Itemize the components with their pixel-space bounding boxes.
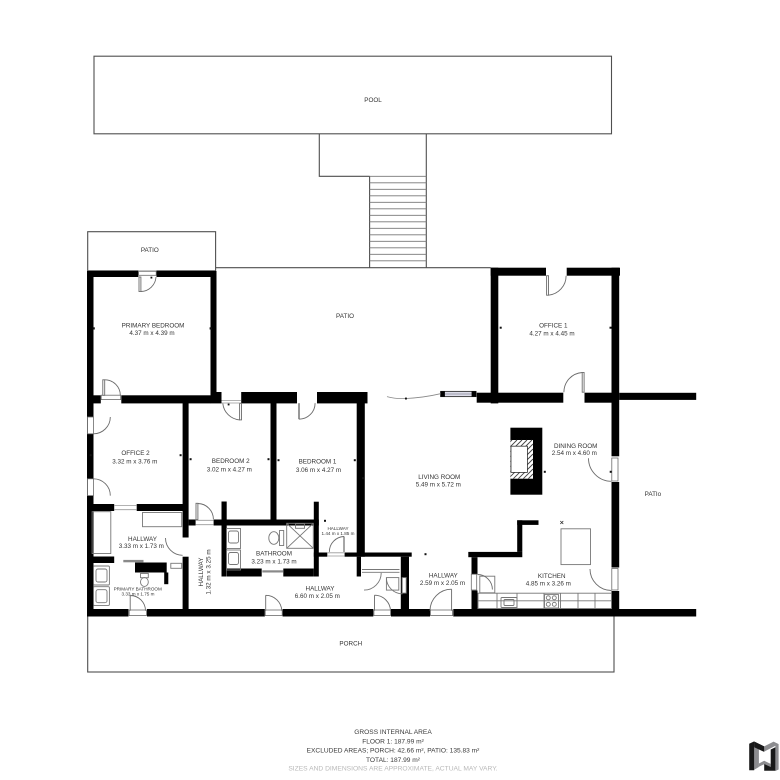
svg-text:OFFICE 1: OFFICE 1	[539, 323, 568, 330]
svg-text:3.33 m x 1.73 m: 3.33 m x 1.73 m	[119, 543, 164, 550]
svg-text:HALLWAY: HALLWAY	[198, 557, 205, 587]
svg-text:BEDROOM 2: BEDROOM 2	[212, 458, 250, 465]
svg-text:3.32 m x 3.76 m: 3.32 m x 3.76 m	[112, 459, 157, 466]
svg-text:2.54 m x 4.60 m: 2.54 m x 4.60 m	[552, 450, 597, 457]
svg-text:GROSS INTERNAL AREA: GROSS INTERNAL AREA	[354, 729, 432, 736]
svg-text:TOTAL: 187.99 m²: TOTAL: 187.99 m²	[366, 757, 421, 764]
svg-text:SIZES AND DIMENSIONS ARE APPRO: SIZES AND DIMENSIONS ARE APPROXIMATE, AC…	[288, 766, 497, 773]
svg-text:6.60 m x 2.05 m: 6.60 m x 2.05 m	[295, 593, 340, 600]
svg-text:3.23 m x 1.73 m: 3.23 m x 1.73 m	[251, 559, 296, 566]
svg-text:FLOOR 1: 187.99 m²: FLOOR 1: 187.99 m²	[362, 738, 424, 745]
svg-text:1.44 m x 1.85 m: 1.44 m x 1.85 m	[322, 531, 355, 536]
svg-text:POOL: POOL	[364, 97, 382, 104]
svg-text:PATIo: PATIo	[645, 491, 662, 498]
svg-text:BATHROOM: BATHROOM	[256, 551, 292, 558]
svg-text:HALLWAY: HALLWAY	[306, 586, 336, 593]
svg-text:PATIO: PATIO	[141, 247, 159, 254]
svg-text:HALLWAY: HALLWAY	[429, 573, 459, 580]
svg-text:PORCH: PORCH	[339, 641, 362, 648]
svg-text:PATIO: PATIO	[336, 313, 354, 320]
svg-text:2.59 m x 2.05 m: 2.59 m x 2.05 m	[420, 580, 465, 587]
svg-text:KITCHEN: KITCHEN	[538, 573, 566, 580]
svg-text:PRIMARY BEDROOM: PRIMARY BEDROOM	[122, 323, 185, 330]
svg-text:4.27 m x 4.45 m: 4.27 m x 4.45 m	[529, 331, 574, 338]
svg-text:3.02 m x 4.27 m: 3.02 m x 4.27 m	[207, 467, 252, 474]
svg-text:BEDROOM 1: BEDROOM 1	[299, 459, 337, 466]
svg-text:1.32 m x 3.25 m: 1.32 m x 3.25 m	[206, 549, 213, 594]
svg-text:HALLWAY: HALLWAY	[128, 536, 158, 543]
svg-text:4.85 m x 3.26 m: 4.85 m x 3.26 m	[526, 581, 571, 588]
svg-text:EXCLUDED AREAS; PORCH: 42.66 m: EXCLUDED AREAS; PORCH: 42.66 m², PATIO: …	[307, 747, 481, 754]
svg-text:4.37 m x 4.39 m: 4.37 m x 4.39 m	[129, 330, 174, 337]
svg-text:5.49 m x 5.72 m: 5.49 m x 5.72 m	[416, 482, 461, 489]
svg-text:LIVING ROOM: LIVING ROOM	[418, 474, 460, 481]
svg-text:3.33 m x 1.75 m: 3.33 m x 1.75 m	[122, 592, 155, 597]
svg-text:3.06 m x 4.27 m: 3.06 m x 4.27 m	[296, 467, 341, 474]
svg-text:OFFICE 2: OFFICE 2	[121, 450, 150, 457]
